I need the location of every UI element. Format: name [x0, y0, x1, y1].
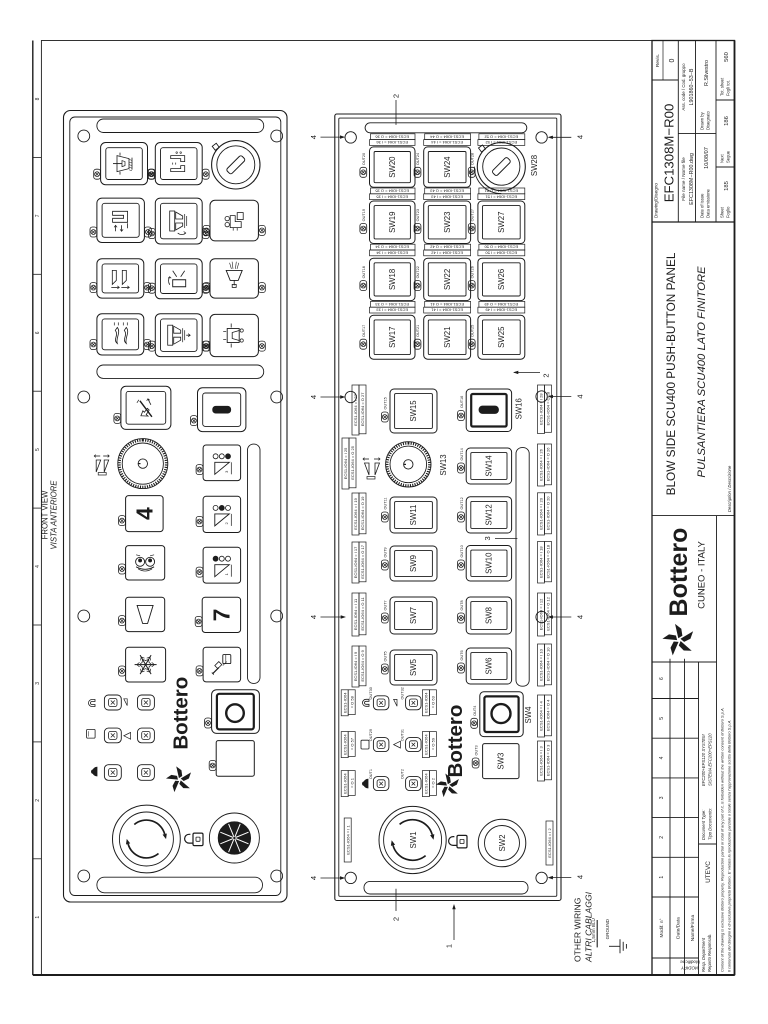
svg-text:OUT11: OUT11: [384, 498, 388, 510]
svg-text:ECS1-IO64 = I 9: ECS1-IO64 = I 9: [353, 651, 358, 681]
svg-text:ECS1-IO64: ECS1-IO64: [342, 692, 347, 713]
svg-text:Resp. Department: Resp. Department: [701, 937, 706, 972]
svg-text:VISTA ANTERIORE: VISTA ANTERIORE: [50, 480, 59, 550]
svg-text:Date/Data: Date/Data: [676, 917, 682, 939]
svg-text:4: 4: [576, 394, 585, 398]
svg-text:186: 186: [724, 116, 730, 126]
svg-text:OUT19: OUT19: [362, 209, 366, 221]
svg-text:OUT14: OUT14: [460, 448, 464, 460]
svg-text:ECS1-IO64 = O 9: ECS1-IO64 = O 9: [360, 649, 365, 681]
svg-text:4: 4: [131, 507, 157, 520]
svg-text:ECS1-IO64: ECS1-IO64: [424, 734, 429, 755]
svg-text:OUT32: OUT32: [401, 687, 405, 699]
svg-text:OUT23: OUT23: [416, 209, 420, 221]
svg-text:= O 1: = O 1: [349, 777, 354, 788]
svg-text:Revis.: Revis.: [655, 54, 661, 67]
svg-text:ECS1-IO64 = O 34: ECS1-IO64 = O 34: [375, 245, 409, 250]
svg-text:Modif. n°: Modif. n°: [659, 918, 665, 937]
svg-text:= O 2: = O 2: [431, 777, 436, 788]
svg-text:SW23: SW23: [443, 212, 452, 233]
svg-text:OUT21: OUT21: [416, 325, 420, 337]
svg-text:OUT22: OUT22: [416, 266, 420, 278]
svg-text:10/08/07: 10/08/07: [704, 147, 710, 169]
svg-text:4: 4: [309, 395, 318, 399]
svg-text:ECS1-IO64 = I 28: ECS1-IO64 = I 28: [539, 393, 544, 425]
svg-text:2: 2: [659, 836, 665, 839]
svg-text:SW19: SW19: [388, 212, 397, 233]
svg-text:SW3: SW3: [496, 753, 505, 770]
svg-text:SW4: SW4: [524, 706, 533, 724]
svg-text:SW6: SW6: [485, 658, 494, 675]
svg-text:Tot. sheet: Tot. sheet: [720, 77, 725, 96]
svg-text:OUT10: OUT10: [460, 545, 464, 557]
svg-text:SW12: SW12: [485, 504, 494, 525]
svg-text:1: 1: [35, 916, 41, 919]
svg-text:FRONT VIEW: FRONT VIEW: [41, 490, 50, 539]
svg-text:OUT29: OUT29: [369, 729, 373, 741]
svg-text:Bottero: Bottero: [170, 677, 193, 750]
svg-text:ECS1-IO64 = I 33: ECS1-IO64 = I 33: [376, 308, 408, 313]
svg-text:SW25: SW25: [497, 326, 506, 348]
svg-text:ECS1-IO64 = I 43: ECS1-IO64 = I 43: [430, 194, 462, 199]
svg-text:ECS1-IO64 = O 35: ECS1-IO64 = O 35: [375, 189, 409, 194]
svg-text:ECS1-IO64 = I 27: ECS1-IO64 = I 27: [353, 393, 358, 425]
svg-text:Document Type:: Document Type:: [701, 810, 706, 840]
svg-text:8: 8: [35, 97, 41, 100]
svg-text:6: 6: [35, 331, 41, 334]
svg-text:ECS1-IO64 = I 50: ECS1-IO64 = I 50: [485, 251, 517, 256]
svg-text:ECS1-IO64 = I 36: ECS1-IO64 = I 36: [376, 140, 408, 145]
svg-text:OUT17: OUT17: [362, 325, 366, 337]
svg-text:ECS1-IO64 = O 27: ECS1-IO64 = O 27: [360, 392, 365, 426]
svg-text:SW15: SW15: [409, 400, 418, 422]
svg-text:BLOW SIDE SCU400 PUSH-BUTTON P: BLOW SIDE SCU400 PUSH-BUTTON PANEL: [664, 252, 678, 495]
svg-text:ECS1-IO64 = O 43: ECS1-IO64 = O 43: [429, 189, 463, 194]
svg-text:Drawing/Disegno: Drawing/Disegno: [654, 183, 659, 218]
svg-text:SW22: SW22: [443, 269, 452, 290]
svg-text:GROUND: GROUND: [605, 918, 610, 939]
svg-text:ECS1-IO64 = O 49: ECS1-IO64 = O 49: [484, 302, 518, 307]
svg-text:ECS1-IO64 = O 4: ECS1-IO64 = O 4: [546, 699, 551, 731]
svg-text:185: 185: [724, 181, 730, 191]
svg-text:ECS1-IO64 = O 10: ECS1-IO64 = O 10: [546, 647, 551, 681]
svg-text:= O 59: = O 59: [431, 737, 436, 750]
svg-text:Il contenuto del disegno è di: Il contenuto del disegno è di esclusiva …: [727, 720, 732, 972]
svg-text:OUT28: OUT28: [470, 153, 474, 165]
svg-text:7: 7: [208, 609, 234, 622]
svg-text:4: 4: [309, 615, 318, 619]
svg-text:ECS1-IO64 = I 42: ECS1-IO64 = I 42: [430, 251, 462, 256]
svg-text:OUT20: OUT20: [362, 153, 366, 165]
svg-text:ECS1-IO64 = I 12: ECS1-IO64 = I 12: [539, 598, 544, 630]
svg-text:ECS1-IO64 = I 18: ECS1-IO64 = I 18: [539, 546, 544, 578]
svg-text:4: 4: [576, 875, 585, 879]
svg-text:1,5mm BLU: 1,5mm BLU: [591, 918, 596, 942]
svg-text:ECS1-IO64 = O 41: ECS1-IO64 = O 41: [429, 302, 463, 307]
svg-text:7: 7: [35, 214, 41, 217]
svg-text:OUT6: OUT6: [460, 650, 464, 660]
svg-text:MODIFY: MODIFY: [680, 966, 699, 971]
svg-text:SW17: SW17: [388, 327, 397, 348]
svg-text:Date of issue: Date of issue: [700, 193, 705, 218]
svg-text:File name / Nome file: File name / Nome file: [681, 157, 686, 201]
svg-text:ECS1-IO64 = I 20: ECS1-IO64 = I 20: [539, 497, 544, 529]
svg-text:SW28: SW28: [530, 155, 539, 176]
svg-text:ECS1-IO64 = I 10: ECS1-IO64 = I 10: [539, 648, 544, 680]
svg-text:R.Silvestro: R.Silvestro: [704, 60, 710, 86]
svg-text:Modifiche: Modifiche: [680, 960, 700, 965]
svg-text:OUT26: OUT26: [470, 266, 474, 278]
svg-text:5: 5: [35, 448, 41, 451]
svg-text:OUT18: OUT18: [362, 266, 366, 278]
svg-text:Drawn by: Drawn by: [700, 111, 705, 130]
svg-text:ECS1-IO64 = I 35: ECS1-IO64 = I 35: [376, 194, 408, 199]
svg-text:ECS1-IO64 = O 42: ECS1-IO64 = O 42: [429, 245, 463, 250]
svg-text:4: 4: [576, 615, 585, 619]
svg-text:SW24: SW24: [443, 156, 452, 178]
svg-text:4: 4: [35, 565, 41, 568]
svg-text:ECS1-IO64: ECS1-IO64: [424, 773, 429, 794]
svg-text:ECS1-IO64 = I 1: ECS1-IO64 = I 1: [345, 825, 350, 855]
svg-text:ECS1-IO64 = O 26: ECS1-IO64 = O 26: [546, 447, 551, 481]
svg-text:Content of the drawing is excl: Content of the drawing is exclusive Bott…: [720, 707, 725, 972]
svg-text:ECS1-IO64 = I 3: ECS1-IO64 = I 3: [539, 746, 544, 776]
svg-text:SW11: SW11: [409, 505, 418, 526]
svg-text:OUT4: OUT4: [473, 706, 477, 716]
svg-text:SW13: SW13: [439, 454, 448, 475]
svg-text:ECS1-IO64 = O 25: ECS1-IO64 = O 25: [350, 445, 355, 479]
svg-text:ECS1-IO64 = O 52: ECS1-IO64 = O 52: [484, 134, 518, 139]
svg-text:ECS1-IO64 = O 11: ECS1-IO64 = O 11: [360, 596, 365, 630]
svg-text:SW16: SW16: [514, 398, 523, 419]
svg-text:OUT31: OUT31: [401, 729, 405, 741]
svg-text:4: 4: [659, 756, 665, 759]
svg-text:ECS1-IO64 = O 19: ECS1-IO64 = O 19: [360, 496, 365, 530]
svg-text:ECS1-IO64 = O 50: ECS1-IO64 = O 50: [484, 245, 518, 250]
svg-text:ECS1-IO64 = I 49: ECS1-IO64 = I 49: [485, 308, 517, 313]
svg-text:ECS1-IO64 = O 18: ECS1-IO64 = O 18: [546, 544, 551, 578]
svg-text:ECS1-IO64 = O 12: ECS1-IO64 = O 12: [546, 596, 551, 630]
svg-text:4: 4: [576, 135, 585, 139]
svg-text:Description / Descrizione: Description / Descrizione: [727, 465, 732, 512]
svg-text:SW21: SW21: [443, 327, 452, 348]
svg-text:3: 3: [35, 682, 41, 685]
svg-text:0: 0: [669, 58, 676, 62]
svg-text:SW8: SW8: [485, 607, 494, 624]
svg-text:OUT8: OUT8: [460, 600, 464, 610]
svg-text:OUT16: OUT16: [460, 396, 464, 408]
svg-text:OUT5: OUT5: [384, 651, 388, 661]
svg-text:OUT7: OUT7: [384, 600, 388, 610]
svg-text:ECS1-IO64 = I 34: ECS1-IO64 = I 34: [376, 251, 408, 256]
svg-text:ECS1-IO64 = I 2: ECS1-IO64 = I 2: [547, 828, 552, 858]
svg-text:2: 2: [392, 94, 401, 98]
svg-text:Segue: Segue: [726, 150, 731, 163]
svg-text:= O 57: = O 57: [349, 737, 354, 750]
svg-text:OUT12: OUT12: [460, 497, 464, 509]
svg-text:1: 1: [445, 944, 454, 948]
svg-text:2: 2: [542, 373, 551, 377]
svg-text:Reparto Responsab.: Reparto Responsab.: [707, 934, 712, 972]
svg-text:= O 58: = O 58: [349, 695, 354, 708]
svg-text:ECS1-IO64 = I 51: ECS1-IO64 = I 51: [485, 194, 517, 199]
svg-text:3: 3: [659, 796, 665, 799]
svg-text:ECS1-IO64: ECS1-IO64: [342, 734, 347, 755]
svg-text:SW20: SW20: [388, 156, 397, 178]
svg-text:ECS1-IO64 = O 33: ECS1-IO64 = O 33: [375, 302, 409, 307]
svg-text:2: 2: [392, 917, 401, 921]
svg-text:2: 2: [35, 799, 41, 802]
svg-text:ECS1-IO64 = O 20: ECS1-IO64 = O 20: [546, 496, 551, 530]
svg-text:6: 6: [659, 677, 665, 680]
svg-text:OUT30: OUT30: [369, 687, 373, 699]
svg-text:ECS1-IO64 = I 19: ECS1-IO64 = I 19: [353, 497, 358, 529]
svg-text:Fogli tot.: Fogli tot.: [726, 80, 731, 96]
svg-text:Bottero: Bottero: [444, 705, 467, 778]
svg-text:= O 63: = O 63: [431, 695, 436, 708]
svg-text:SW9: SW9: [409, 555, 418, 572]
svg-text:EFC200+EPS120 SYSTEM: EFC200+EPS120 SYSTEM: [701, 734, 706, 786]
svg-text:4: 4: [309, 876, 318, 880]
svg-text:OUT25: OUT25: [470, 325, 474, 337]
svg-text:SW2: SW2: [498, 835, 507, 852]
svg-text:OUT2: OUT2: [401, 769, 405, 779]
svg-text:Next: Next: [720, 154, 725, 163]
svg-text:SW1: SW1: [409, 832, 418, 849]
svg-text:Sheet: Sheet: [720, 206, 725, 218]
svg-text:3: 3: [483, 536, 492, 540]
svg-text:SW7: SW7: [409, 607, 418, 624]
svg-text:ECS1-IO64 = O 44: ECS1-IO64 = O 44: [429, 134, 463, 139]
svg-text:UTEVC: UTEVC: [705, 861, 712, 883]
svg-text:PULSANTIERA SCU400 LATO FINITO: PULSANTIERA SCU400 LATO FINITORE: [696, 266, 708, 478]
svg-text:Data emissione: Data emissione: [706, 188, 711, 218]
svg-text:OUT27: OUT27: [470, 209, 474, 221]
svg-text:EFC1308M−R00: EFC1308M−R00: [662, 104, 677, 203]
svg-text:1: 1: [659, 876, 665, 879]
svg-text:ECS1-IO64 = O 36: ECS1-IO64 = O 36: [375, 134, 409, 139]
svg-text:ECS1-IO64 = I 17: ECS1-IO64 = I 17: [353, 546, 358, 578]
svg-text:ECS1-IO64: ECS1-IO64: [424, 692, 429, 713]
svg-text:OUT24: OUT24: [416, 153, 420, 165]
svg-text:SW10: SW10: [485, 552, 494, 574]
svg-text:ECS1-IO64 = I 44: ECS1-IO64 = I 44: [430, 140, 462, 145]
svg-text:OUT15: OUT15: [384, 397, 388, 409]
svg-text:ECS1-IO64 = O 51: ECS1-IO64 = O 51: [484, 189, 518, 194]
svg-text:Name/Firma: Name/Firma: [690, 914, 696, 941]
svg-text:560: 560: [724, 52, 730, 62]
svg-text:EFC1308M−R00.dwg: EFC1308M−R00.dwg: [689, 153, 695, 205]
svg-text:SW26: SW26: [497, 269, 506, 290]
svg-text:ECS1-IO64: ECS1-IO64: [342, 773, 347, 794]
svg-text:SW18: SW18: [388, 269, 397, 290]
svg-text:L901860−53−B: L901860−53−B: [689, 68, 695, 105]
svg-text:Tipo Documento:: Tipo Documento:: [708, 808, 713, 840]
svg-text:ECS1-IO64 = I 26: ECS1-IO64 = I 26: [539, 448, 544, 480]
svg-text:ECS1-IO64 = I 4: ECS1-IO64 = I 4: [539, 701, 544, 731]
svg-text:ECS1-IO64 = I 25: ECS1-IO64 = I 25: [343, 447, 348, 479]
svg-text:SISTEMA EFC200+EPS120: SISTEMA EFC200+EPS120: [708, 733, 713, 786]
svg-text:OTHER WIRING: OTHER WIRING: [573, 897, 583, 962]
svg-text:SW27: SW27: [497, 212, 506, 233]
svg-text:ECS1-IO64 = O 3: ECS1-IO64 = O 3: [546, 744, 551, 776]
svg-text:SW5: SW5: [409, 658, 418, 676]
svg-text:Foglio: Foglio: [726, 206, 731, 218]
svg-text:CUNEO - ITALY: CUNEO - ITALY: [697, 540, 708, 608]
svg-text:Bottero: Bottero: [665, 528, 693, 617]
svg-text:Disegnato: Disegnato: [706, 110, 711, 130]
svg-text:OUT1: OUT1: [369, 769, 373, 779]
svg-text:SW14: SW14: [485, 455, 494, 477]
svg-text:Ass. code / Cod. gruppo: Ass. code / Cod. gruppo: [681, 63, 686, 111]
svg-text:4: 4: [309, 135, 318, 139]
svg-text:ECS1-IO64 = I 41: ECS1-IO64 = I 41: [430, 308, 462, 313]
svg-text:5: 5: [659, 717, 665, 720]
svg-text:ECS1-IO64 = O 17: ECS1-IO64 = O 17: [360, 544, 365, 578]
svg-text:OUT9: OUT9: [384, 547, 388, 557]
svg-text:OUT3: OUT3: [474, 745, 478, 755]
svg-text:ECS1-IO64 = I 11: ECS1-IO64 = I 11: [353, 598, 358, 630]
